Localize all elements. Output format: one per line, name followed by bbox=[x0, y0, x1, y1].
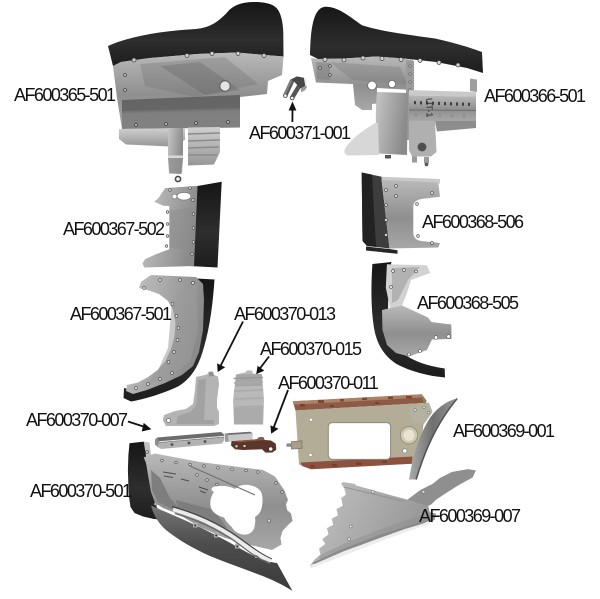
svg-text:UT-1: UT-1 bbox=[424, 98, 435, 118]
